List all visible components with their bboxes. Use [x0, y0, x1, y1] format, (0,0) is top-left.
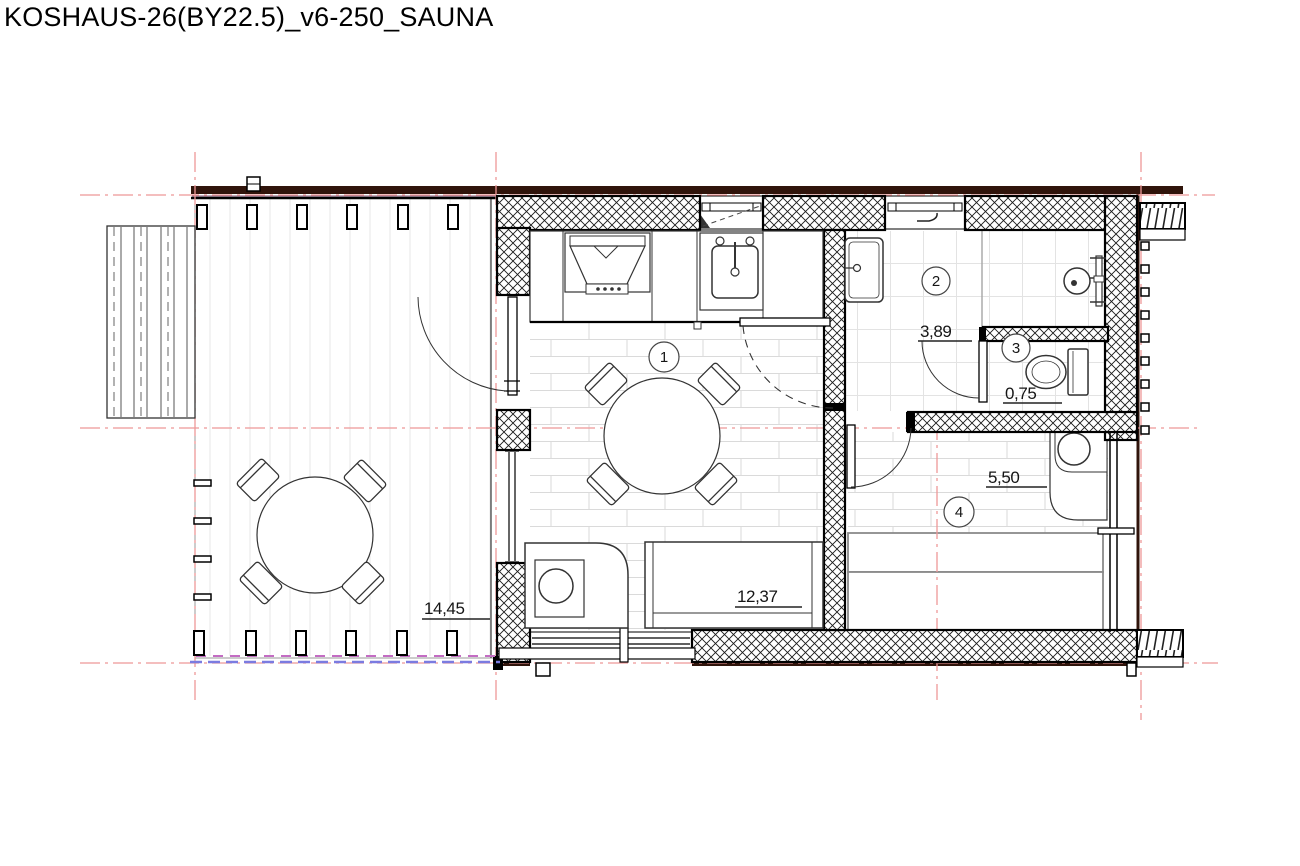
range-hood — [565, 233, 650, 294]
terrace-area-label: 14,45 — [424, 599, 465, 618]
north-step — [1140, 203, 1185, 240]
washbasin — [845, 238, 883, 302]
room-2-number: 2 — [932, 273, 940, 290]
sofa — [645, 542, 823, 628]
east-cladding-battens — [1141, 242, 1149, 434]
floor-plan-drawing: 1 2 3 4 14,45 12,37 3,89 0,75 5,50 — [0, 0, 1300, 866]
room-4-number: 4 — [955, 504, 963, 521]
room-2-area-label: 3,89 — [920, 322, 952, 341]
sauna-benches — [848, 533, 1103, 630]
kitchen-window — [700, 196, 763, 229]
shower-room-window — [885, 196, 965, 229]
washing-machine — [525, 543, 628, 628]
dining-table — [604, 378, 720, 494]
terrace-edge-lines — [190, 656, 500, 662]
room-4-area-label: 5,50 — [988, 468, 1020, 487]
room-1-number: 1 — [660, 349, 668, 366]
bathroom-tile-floor — [845, 231, 1105, 411]
room-3-area-label: 0,75 — [1005, 384, 1037, 403]
access-ramp — [107, 226, 195, 418]
room-3-number: 3 — [1012, 340, 1020, 357]
south-step — [1137, 630, 1183, 667]
sauna-heater — [1050, 432, 1107, 520]
room-1-area-label: 12,37 — [737, 587, 778, 606]
kitchen-sink — [700, 233, 763, 310]
floor-plan-sheet: KOSHAUS-26(BY22.5)_v6-250_SAUNA — [0, 0, 1300, 866]
